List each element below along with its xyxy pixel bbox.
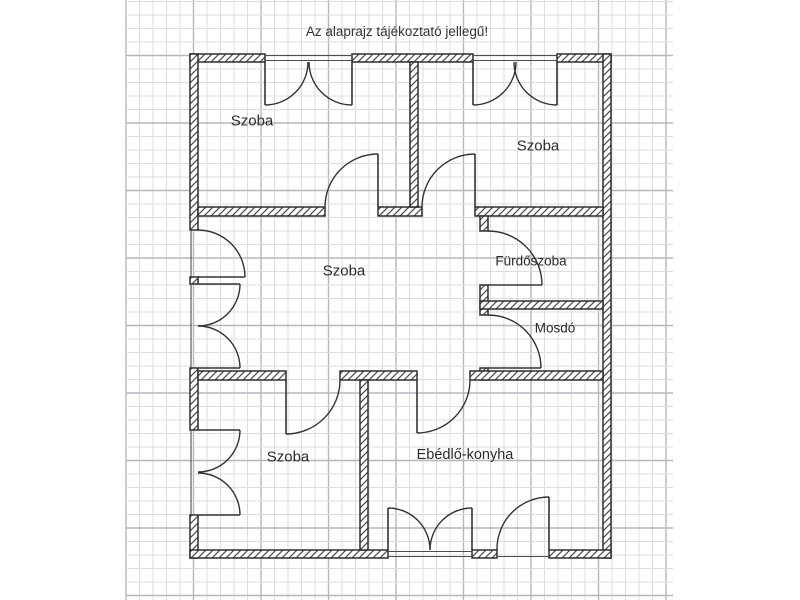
wall-segment [190,550,388,558]
window-swing-arc [473,62,516,105]
wall-segment [198,371,286,380]
room-labels-layer: SzobaSzobaSzobaFürdőszobaMosdóSzobaEbédl… [231,112,576,465]
wall-segment [480,216,488,231]
room-label-furdoszoba: Fürdőszoba [495,254,567,269]
wall-segment [475,207,603,216]
wall-segment [190,54,265,62]
room-label-szoba-bottom-left: Szoba [267,448,310,465]
door-swing-arc [198,230,245,277]
door-swing-arc [497,497,549,550]
room-label-mosdo: Mosdó [535,321,576,336]
wall-segment [198,207,325,216]
door-swing-arc [422,154,475,207]
wall-segment [190,277,198,284]
floorplan-page: SzobaSzobaSzobaFürdőszobaMosdóSzobaEbédl… [0,0,800,600]
wall-segment [470,371,603,380]
wall-segment [480,285,488,315]
wall-segment [340,371,417,380]
wall-segment [603,54,611,558]
wall-segment [378,207,422,216]
wall-segment [360,380,368,550]
room-label-szoba-top-right: Szoba [517,137,560,154]
door-swing-arc [488,315,541,368]
plan-disclaimer-title: Az alaprajz tájékoztató jellegű! [306,24,488,39]
wall-segment [190,54,198,230]
wall-segment [410,62,418,207]
room-label-ebedlo-konyha: Ebédlő-konyha [417,447,515,463]
wall-segment [352,54,473,62]
wall-segment [549,550,611,558]
room-label-szoba-middle: Szoba [323,262,366,279]
window-swing-arc [514,62,557,105]
door-swing-arc [325,154,378,207]
floor-plan-svg: SzobaSzobaSzobaFürdőszobaMosdóSzobaEbédl… [0,0,800,600]
room-label-szoba-top-left: Szoba [231,112,274,129]
wall-segment [472,550,497,558]
walls-layer [190,54,611,558]
wall-segment [190,368,198,430]
wall-segment [480,301,603,309]
